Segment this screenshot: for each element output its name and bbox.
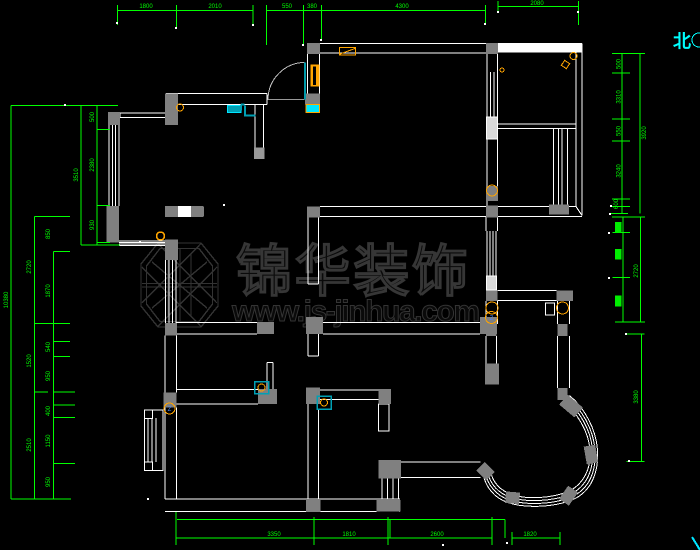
- svg-text:3350: 3350: [267, 532, 281, 538]
- svg-text:3240: 3240: [617, 164, 623, 178]
- svg-text:3510: 3510: [74, 168, 80, 182]
- svg-text:2720: 2720: [27, 260, 33, 274]
- svg-text:3380: 3380: [634, 390, 640, 404]
- svg-text:930: 930: [90, 219, 96, 230]
- svg-text:北: 北: [673, 32, 691, 52]
- svg-text:1870: 1870: [46, 284, 52, 298]
- svg-text:600: 600: [614, 198, 620, 209]
- svg-text:2510: 2510: [27, 438, 33, 452]
- svg-text:1150: 1150: [46, 434, 52, 448]
- svg-text:1810: 1810: [342, 532, 356, 538]
- svg-text:1800: 1800: [139, 4, 153, 10]
- svg-text:2380: 2380: [90, 158, 96, 172]
- svg-text:380: 380: [307, 4, 318, 10]
- svg-text:500: 500: [617, 58, 623, 69]
- svg-text:3920: 3920: [642, 126, 648, 140]
- svg-text:2600: 2600: [430, 532, 444, 538]
- svg-text:10380: 10380: [4, 291, 10, 308]
- svg-text:540: 540: [46, 341, 52, 352]
- svg-text:500: 500: [90, 111, 96, 122]
- svg-text:400: 400: [46, 405, 52, 416]
- svg-text:4300: 4300: [395, 4, 409, 10]
- svg-text:950: 950: [46, 370, 52, 381]
- svg-text:2720: 2720: [634, 264, 640, 278]
- svg-text:1520: 1520: [27, 354, 33, 368]
- svg-text:950: 950: [46, 476, 52, 487]
- svg-text:550: 550: [617, 125, 623, 136]
- svg-text:550: 550: [282, 4, 293, 10]
- svg-text:Z: Z: [168, 407, 172, 413]
- svg-text:3310: 3310: [617, 90, 623, 104]
- svg-text:2080: 2080: [530, 1, 544, 7]
- svg-text:Z: Z: [490, 316, 494, 322]
- svg-text:1820: 1820: [523, 532, 537, 538]
- svg-text:2010: 2010: [208, 4, 222, 10]
- svg-text:850: 850: [46, 228, 52, 239]
